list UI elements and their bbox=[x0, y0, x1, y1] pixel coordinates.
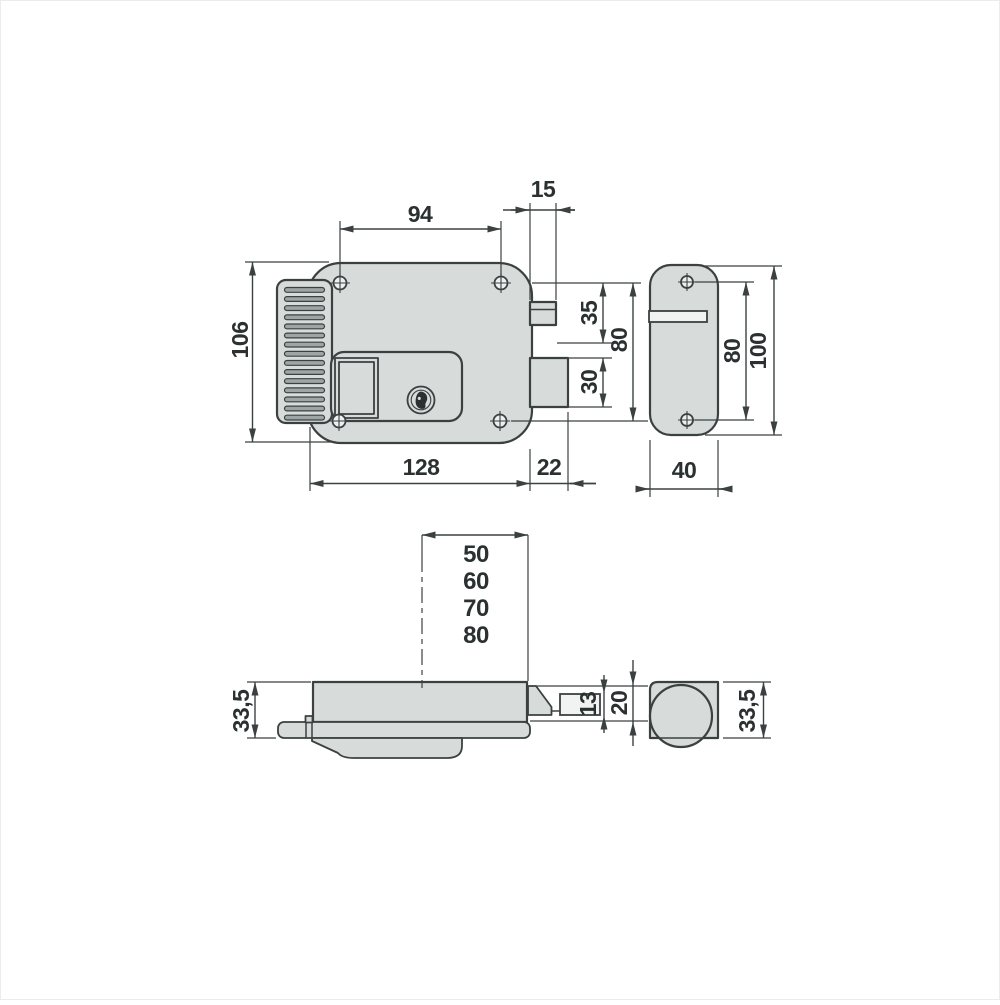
grille-slat bbox=[285, 388, 325, 393]
grille-slat bbox=[285, 333, 325, 338]
lock-body-bottom bbox=[313, 682, 527, 722]
dim-strike-width-40: 40 bbox=[636, 440, 732, 497]
dim-row-spacing-80: 80 bbox=[606, 283, 633, 421]
strike-plate bbox=[650, 265, 718, 435]
strike-slot bbox=[649, 311, 707, 322]
dim-label-15: 15 bbox=[531, 176, 556, 202]
dim-label-30: 30 bbox=[576, 370, 602, 395]
dim-bolt-30: 30 bbox=[576, 358, 603, 407]
vent-grille bbox=[277, 280, 332, 423]
latch-bolt-bottom bbox=[528, 686, 560, 715]
dim-label-128: 128 bbox=[403, 454, 441, 480]
dim-label-35: 35 bbox=[576, 300, 602, 325]
grille-slat bbox=[285, 370, 325, 375]
grille-slat bbox=[285, 324, 325, 329]
bottom-view: 50 60 70 80 33,5 13 20 bbox=[228, 535, 771, 758]
grille-slat bbox=[285, 361, 325, 366]
dim-label-80-strike: 80 bbox=[719, 339, 745, 364]
dim-label-20: 20 bbox=[606, 691, 632, 716]
dim-lip-13: 13 bbox=[575, 675, 604, 733]
dim-label-33-5-left: 33,5 bbox=[228, 689, 254, 732]
dim-label-22: 22 bbox=[537, 454, 562, 480]
grille-slat bbox=[285, 288, 325, 293]
dim-label-13: 13 bbox=[575, 692, 601, 717]
dim-label-33-5-right: 33,5 bbox=[734, 689, 760, 732]
dim-label-94: 94 bbox=[408, 201, 433, 227]
backset-option-60: 60 bbox=[463, 568, 489, 595]
latch-bolt bbox=[530, 302, 556, 325]
key-cylinder bbox=[408, 387, 435, 414]
backset-option-50: 50 bbox=[463, 541, 489, 568]
front-view: 94 15 106 35 bbox=[227, 176, 648, 491]
grille-slat bbox=[285, 297, 325, 302]
dim-label-40: 40 bbox=[672, 457, 697, 483]
bolt-follower bbox=[335, 358, 378, 418]
strike-plate-view: 80 100 40 bbox=[636, 265, 782, 497]
cover-bottom bbox=[312, 738, 462, 758]
dim-label-100: 100 bbox=[745, 333, 771, 370]
dim-backset: 50 60 70 80 bbox=[422, 535, 528, 688]
backset-option-80: 80 bbox=[463, 622, 489, 649]
dim-latch-35: 35 bbox=[576, 283, 603, 343]
backset-option-70: 70 bbox=[463, 595, 489, 622]
grille-slat bbox=[285, 379, 325, 384]
dim-channel-20: 20 bbox=[606, 660, 633, 746]
technical-drawing: 94 15 106 35 bbox=[0, 0, 1000, 1000]
grille-slat bbox=[285, 351, 325, 356]
grille-slat bbox=[285, 315, 325, 320]
dim-label-106: 106 bbox=[227, 322, 253, 359]
grille-slat bbox=[285, 306, 325, 311]
dim-throw-22: 22 bbox=[530, 412, 596, 491]
drawing-canvas: 94 15 106 35 bbox=[0, 0, 1000, 1000]
dim-depth-right-33-5: 33,5 bbox=[723, 682, 771, 738]
grille-slat bbox=[285, 342, 325, 347]
grille-slat bbox=[285, 415, 325, 420]
deadbolt bbox=[530, 358, 568, 407]
grille-slat bbox=[285, 406, 325, 411]
plate-notch bbox=[306, 716, 313, 723]
dim-label-80-front: 80 bbox=[606, 328, 632, 353]
cylinder-housing-bottom bbox=[650, 682, 718, 747]
grille-slat bbox=[285, 397, 325, 402]
